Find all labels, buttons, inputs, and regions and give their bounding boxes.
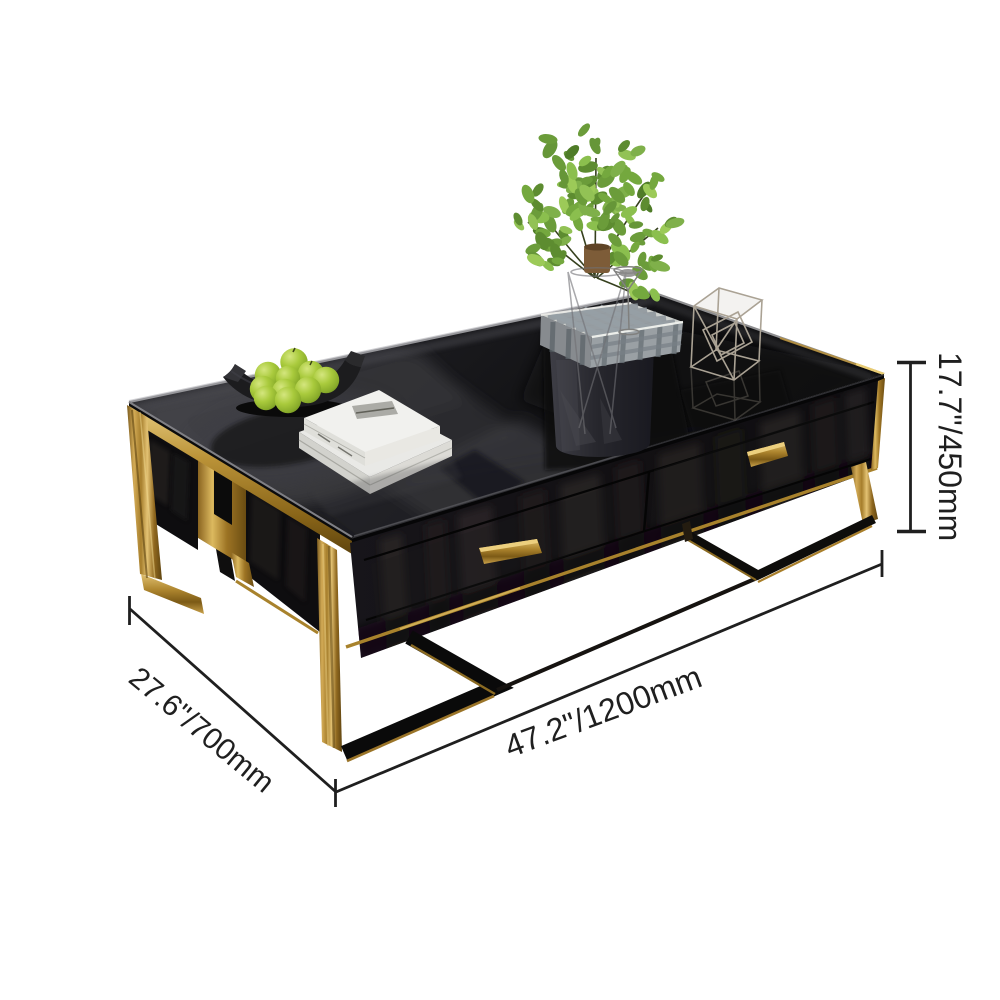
svg-text:17.7"/450mm: 17.7"/450mm <box>932 352 968 541</box>
